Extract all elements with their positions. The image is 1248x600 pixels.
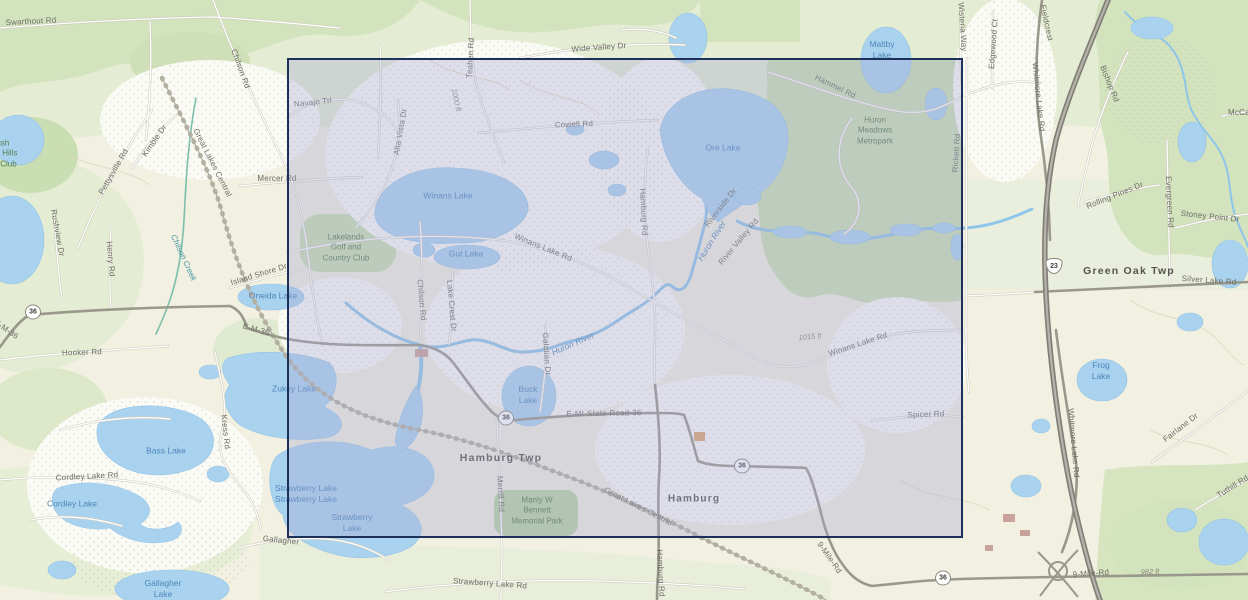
map-canvas[interactable]: Swarthout RdChilson RdKimble DrPettysvil… bbox=[0, 0, 1248, 600]
state-route-shield-36: 36 bbox=[935, 571, 951, 586]
us-route-shield-23: 23 bbox=[1046, 258, 1063, 274]
selection-rectangle[interactable] bbox=[287, 58, 963, 538]
state-route-shield-36: 36 bbox=[25, 305, 41, 320]
